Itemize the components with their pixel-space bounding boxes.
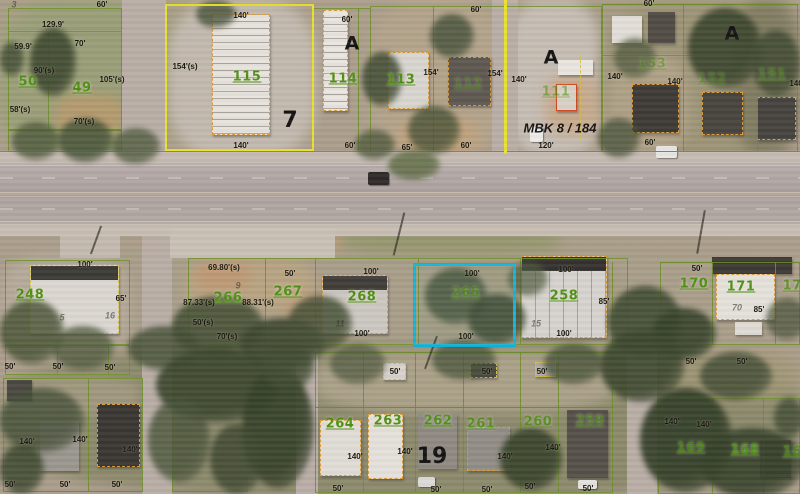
block-letter-19: 19 [417, 446, 448, 468]
dimension-label-50: 50' [686, 358, 697, 366]
driveway-apron [60, 236, 120, 258]
dimension-label-70s: 70'(s) [217, 333, 238, 341]
tree-canopy [408, 106, 460, 154]
dimension-label-105s: 105'(s) [99, 76, 124, 84]
parcel-boundary-line [313, 8, 370, 9]
dimension-label-85: 85' [754, 306, 765, 314]
dimension-label-140: 140' [397, 448, 412, 456]
parcel-label-262: 262 [424, 415, 453, 428]
dimension-label-50: 50' [525, 483, 536, 491]
dimension-label-50: 50' [5, 481, 16, 489]
parcel-label-50: 50 [18, 76, 37, 89]
dimension-label-100: 100' [558, 266, 573, 274]
block-letter-A: A [345, 35, 360, 54]
parcel-label-261: 261 [467, 418, 496, 431]
parcel-boundary-line [88, 378, 89, 492]
dimension-label-50: 50' [482, 486, 493, 494]
parcel-label-248: 248 [16, 289, 45, 302]
tree-canopy [430, 14, 474, 58]
dimension-label-140: 140' [122, 446, 137, 454]
dimension-label-70s: 70'(s) [74, 118, 95, 126]
vehicle [368, 172, 389, 185]
driveway-apron [170, 228, 335, 258]
parcel-label-152: 152 [698, 73, 727, 86]
dimension-label-100: 100' [77, 261, 92, 269]
dimension-label-120: 120' [538, 142, 553, 150]
dimension-label-140: 140' [664, 418, 679, 426]
parcel-boundary-line [315, 407, 613, 408]
tree-canopy [262, 344, 314, 390]
parcel-label-151: 151 [758, 69, 787, 82]
dimension-label-140: 140' [545, 444, 560, 452]
block-letter-A: A [544, 49, 559, 68]
dimension-label-6980s: 69.80'(s) [208, 264, 240, 272]
center-line [0, 196, 800, 197]
block-letter-7: 7 [282, 110, 297, 132]
parcel-boundary-line [415, 352, 416, 493]
dimension-label-50: 50' [431, 486, 442, 494]
dimension-label-140: 140' [696, 421, 711, 429]
tree-canopy [148, 398, 210, 482]
dimension-label-100: 100' [354, 330, 369, 338]
dimension-label-50: 50' [737, 358, 748, 366]
lot-number-faint-15: 15 [531, 320, 541, 329]
dimension-label-50: 50' [112, 481, 123, 489]
lot-number-faint-11: 11 [335, 320, 344, 329]
parcel-label-114: 114 [329, 73, 358, 86]
dimension-label-100: 100' [464, 270, 479, 278]
parcel-label-113: 113 [387, 74, 416, 87]
dimension-label-60: 60' [461, 142, 472, 150]
dimension-label-140: 140' [19, 438, 34, 446]
parcel-label-172: 172 [783, 280, 800, 293]
lot-number-faint-3: 3 [11, 1, 16, 10]
parcel-label-267: 267 [274, 286, 303, 299]
parcel-label-259: 259 [576, 415, 605, 428]
dimension-label-50: 50' [53, 363, 64, 371]
lot-number-faint-5: 5 [59, 314, 64, 323]
parcel-label-112: 112 [454, 78, 483, 91]
dimension-label-50: 50' [692, 265, 703, 273]
dimension-label-85: 85' [599, 298, 610, 306]
tree-canopy [700, 428, 800, 494]
dimension-label-140: 140' [497, 453, 512, 461]
dimension-label-50: 50' [482, 368, 493, 376]
lot-number-faint-16: 16 [105, 312, 115, 321]
dimension-label-60: 60' [644, 0, 655, 8]
dimension-label-58s: 58'(s) [10, 106, 31, 114]
dimension-label-65: 65' [116, 295, 127, 303]
parcel-label-170: 170 [680, 278, 709, 291]
parcel-label-260: 260 [524, 416, 553, 429]
dimension-label-154s: 154'(s) [172, 63, 197, 71]
dimension-label-140: 140' [667, 78, 682, 86]
dimension-label-65: 65' [402, 144, 413, 152]
map-book-note-MBK8184: MBK 8 / 184 [524, 122, 597, 135]
block-outline-yellow [504, 0, 507, 154]
dimension-label-70: 70' [75, 40, 86, 48]
dimension-label-50: 50' [105, 364, 116, 372]
parcel-label-258: 258 [550, 290, 579, 303]
dimension-label-50: 50' [60, 481, 71, 489]
dimension-label-50: 50' [285, 270, 296, 278]
dimension-label-140: 140' [607, 73, 622, 81]
dimension-label-140: 140' [233, 12, 248, 20]
dimension-label-50: 50' [583, 485, 594, 493]
parcel-label-266: 266 [214, 292, 243, 305]
parcel-label-167: 167 [783, 446, 800, 459]
dimension-label-50: 50' [5, 363, 16, 371]
parcel-boundary-line [683, 4, 684, 152]
block-letter-A: A [725, 25, 740, 44]
dimension-label-100: 100' [458, 333, 473, 341]
dimension-label-60: 60' [471, 6, 482, 14]
parcel-label-111: 111 [542, 86, 571, 99]
parcel-label-168: 168 [731, 444, 760, 457]
dimension-label-90s: 90'(s) [34, 67, 55, 75]
tree-canopy [766, 298, 800, 340]
dimension-label-1299: 129.9' [42, 21, 64, 29]
tree-canopy [12, 122, 60, 160]
parcel-label-153: 153 [638, 58, 667, 71]
building [323, 10, 348, 111]
aerial-parcel-map: 5049115114113112111153152151248266267268… [0, 0, 800, 494]
dimension-label-100: 100' [556, 330, 571, 338]
dimension-label-599: 59.9' [14, 43, 31, 51]
lot-number-faint-70: 70 [732, 304, 742, 313]
tree-canopy [112, 128, 160, 164]
tree-canopy [210, 424, 264, 494]
dimension-label-60: 60' [645, 139, 656, 147]
dimension-label-50: 50' [537, 368, 548, 376]
dimension-label-8733s: 87.33'(s) [183, 299, 215, 307]
tree-canopy [544, 344, 604, 384]
parcel-label-268: 268 [348, 291, 377, 304]
dimension-label-60: 60' [342, 16, 353, 24]
parcel-label-169: 169 [677, 442, 706, 455]
parcel-boundary-line [8, 31, 122, 32]
parcel-label-265: 265 [452, 287, 481, 300]
parcel-label-263: 263 [374, 415, 403, 428]
parcel-label-115: 115 [233, 71, 262, 84]
lane-line [0, 208, 800, 210]
dimension-label-8831s: 88.31'(s) [242, 299, 274, 307]
dimension-label-140: 140' [347, 453, 362, 461]
dimension-label-140: 140' [511, 76, 526, 84]
dimension-label-100: 100' [363, 268, 378, 276]
tree-canopy [330, 344, 386, 384]
tree-canopy [355, 130, 395, 160]
parcel-label-49: 49 [72, 82, 91, 95]
dimension-label-50: 50' [333, 485, 344, 493]
dimension-label-140: 140' [72, 436, 87, 444]
dimension-label-140: 140' [789, 80, 800, 88]
tree-canopy [774, 398, 800, 438]
parcel-label-264: 264 [326, 418, 355, 431]
dimension-label-154: 154' [423, 69, 438, 77]
dimension-label-140: 140' [233, 142, 248, 150]
dimension-label-50s: 50'(s) [193, 319, 214, 327]
tree-canopy [388, 150, 440, 180]
parcel-boundary-line [358, 8, 359, 152]
dimension-label-50: 50' [390, 368, 401, 376]
lot-number-faint-9: 9 [235, 282, 240, 291]
dimension-label-154: 154' [487, 70, 502, 78]
center-line [0, 192, 800, 193]
dimension-label-60: 60' [97, 1, 108, 9]
parcel-label-171: 171 [727, 281, 756, 294]
dimension-label-60: 60' [345, 142, 356, 150]
tree-canopy [598, 118, 640, 158]
